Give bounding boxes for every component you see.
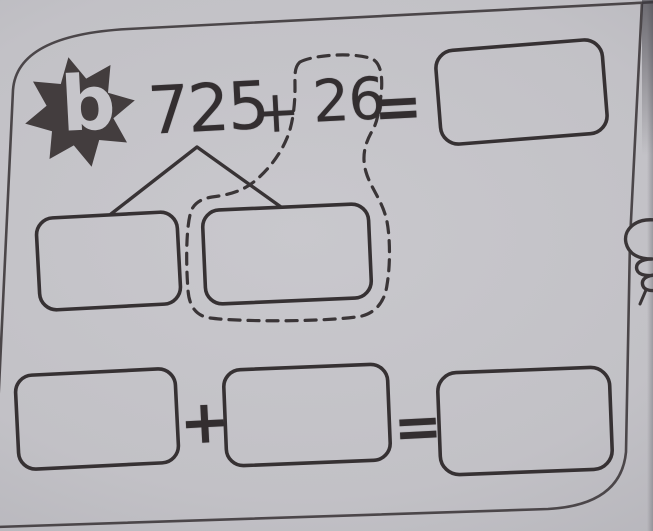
expanded-second-box[interactable] (223, 364, 391, 467)
expanded-result-box[interactable] (437, 367, 613, 476)
answer-box-sum[interactable] (435, 39, 609, 146)
expanded-first-box[interactable] (15, 368, 179, 470)
equation-plus-sign: + (250, 81, 302, 141)
expanded-plus-sign: + (178, 391, 231, 454)
exercise-label: b (59, 64, 117, 143)
decomposition-left-box[interactable] (36, 211, 182, 310)
equation-equals-sign: = (372, 76, 424, 136)
expanded-equals-sign: = (392, 396, 444, 456)
decomposition-right-box[interactable] (202, 203, 372, 304)
worksheet-photo: b 725 + 26 = + = (0, 0, 653, 531)
